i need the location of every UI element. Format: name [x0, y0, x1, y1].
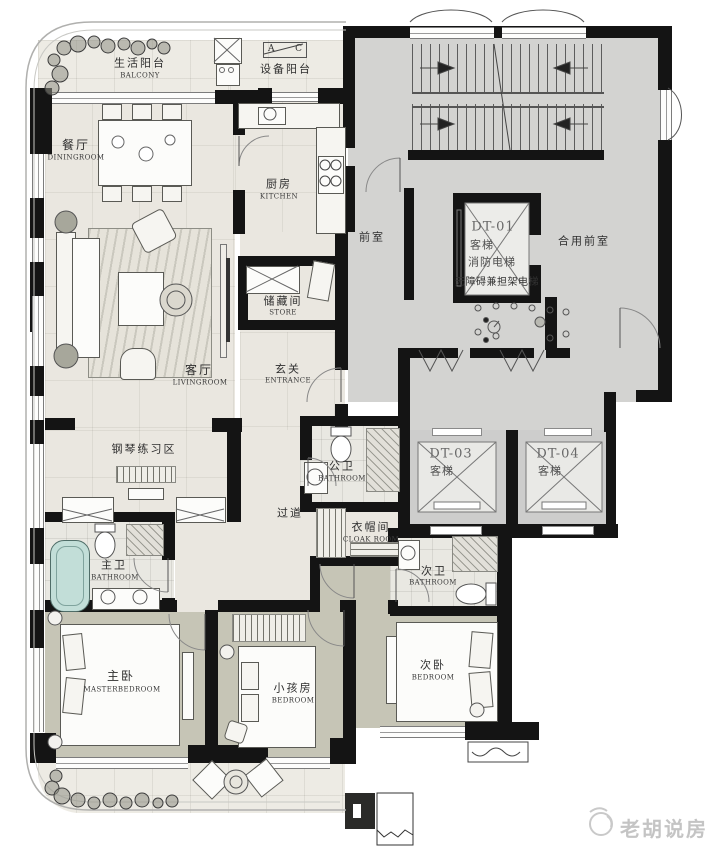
label-corridor: 过道: [277, 508, 303, 519]
label-cloak-room: 衣帽间: [352, 522, 391, 533]
label-master-bedroom: 主卧: [107, 670, 135, 682]
elevator-door-dt04-south: [542, 526, 594, 535]
label-dt04-id: DT-04: [536, 448, 579, 461]
wardrobe-cloak: [316, 508, 346, 558]
lounge-chair: [120, 348, 156, 380]
elevator-door-dt04: [544, 428, 592, 436]
label-second-bedroom: 次卧: [420, 660, 446, 671]
wall: [300, 416, 406, 426]
vanity-master: [92, 588, 160, 610]
label-living: 客厅: [185, 364, 213, 376]
wall: [335, 230, 348, 370]
window: [33, 648, 44, 732]
dining-chair: [102, 104, 122, 120]
wall: [45, 418, 75, 430]
label-second-bedroom-en: BEDROOM: [412, 675, 455, 682]
label-kids-bedroom: 小孩房: [274, 683, 313, 694]
kitchen-window: [272, 92, 318, 102]
pillow: [468, 631, 493, 669]
wall: [30, 610, 44, 648]
section-letter-c: C: [295, 44, 302, 54]
wall: [205, 610, 218, 757]
stair-flight-lower: [412, 104, 604, 150]
stair-window: [410, 27, 494, 39]
window: [32, 154, 44, 198]
section-marker-box: A C: [263, 42, 307, 58]
label-cloak-room-en: CLOAK ROOM: [343, 537, 399, 544]
label-dt01-note: 无障碍兼担架电梯: [455, 278, 539, 288]
wall: [658, 140, 672, 264]
stove: [318, 156, 344, 194]
dining-chair: [162, 186, 182, 202]
wall: [330, 738, 356, 764]
wall: [30, 366, 44, 396]
window: [32, 396, 44, 420]
bed-bench: [386, 636, 397, 704]
wardrobe-kids: [232, 614, 306, 642]
pillow: [468, 671, 493, 709]
wall: [30, 733, 56, 763]
label-kitchen-en: KITCHEN: [260, 194, 298, 201]
wall: [30, 88, 52, 154]
floor-drain-box: [214, 38, 242, 64]
label-public-bath: 公卫: [329, 461, 355, 472]
window: [32, 238, 44, 262]
pillow: [241, 694, 259, 722]
wall: [604, 392, 616, 432]
store-cabinet: [246, 266, 300, 294]
bedroom-slider: [56, 757, 188, 769]
wall: [390, 606, 500, 616]
coffee-table: [118, 272, 164, 326]
elevator-door-dt03-south: [430, 526, 482, 535]
wall: [227, 432, 241, 522]
label-life-balcony-en: BALCONY: [120, 73, 160, 80]
watermark-brand: 老胡说房: [620, 813, 708, 842]
section-letter-a: A: [268, 44, 275, 54]
bathtub: [50, 540, 90, 612]
tv: [226, 258, 230, 342]
label-entrance-en: ENTRANCE: [265, 378, 311, 385]
label-dining-en: DININGROOM: [48, 155, 105, 162]
label-entrance: 玄关: [275, 364, 301, 375]
label-dt03-id: DT-03: [429, 448, 472, 461]
dining-table: [98, 120, 192, 186]
room-corridor-west: [175, 517, 230, 612]
wall: [453, 293, 541, 303]
shower-second: [452, 536, 498, 572]
label-second-bath: 次卫: [421, 566, 447, 577]
balcony-slider: [52, 92, 215, 104]
bedroom-slider: [266, 757, 330, 769]
sofa-seat: [72, 238, 100, 358]
wall: [636, 390, 672, 402]
label-dining: 餐厅: [62, 139, 90, 151]
wall: [30, 198, 44, 238]
wall: [606, 430, 616, 526]
pillow: [62, 677, 86, 715]
wall: [408, 150, 604, 160]
window-seat: [176, 497, 226, 523]
label-master-bath: 主卫: [101, 560, 127, 571]
wall: [233, 190, 245, 234]
label-store: 储藏间: [264, 296, 303, 307]
label-dt01-line2: 消防电梯: [468, 257, 516, 268]
label-public-bath-en: BATHROOM: [318, 476, 366, 483]
washer: [216, 64, 240, 86]
wall: [300, 426, 312, 460]
shower-master: [126, 524, 164, 556]
dining-chair: [162, 104, 182, 120]
elevator-door-dt03: [432, 428, 482, 436]
label-dt01-line1: 客梯: [470, 240, 494, 251]
wall: [545, 297, 557, 350]
window: [660, 90, 672, 140]
pillow: [62, 633, 86, 671]
wall: [465, 722, 539, 740]
watermark-logo-icon: [590, 808, 612, 835]
label-life-balcony: 生活阳台: [114, 58, 166, 69]
label-dt01-id: DT-01: [471, 221, 514, 234]
wall: [658, 342, 672, 394]
bed-bench: [182, 652, 194, 720]
wall: [212, 418, 242, 432]
label-kids-bedroom-en: BEDROOM: [272, 698, 315, 705]
wall: [506, 430, 518, 526]
flue-outline: [377, 793, 413, 845]
label-kitchen: 厨房: [266, 179, 292, 190]
wall: [529, 203, 541, 235]
wall: [343, 612, 356, 757]
wall: [404, 188, 414, 300]
label-shared-front-room: 合用前室: [558, 236, 610, 247]
wall: [470, 348, 534, 358]
label-second-bath-en: BATHROOM: [409, 580, 457, 587]
window: [33, 564, 44, 610]
window: [380, 726, 465, 738]
wall: [218, 600, 310, 612]
stair-flight-upper: [412, 44, 604, 92]
stair-window: [502, 27, 586, 39]
label-master-bath-en: BATHROOM: [91, 575, 139, 582]
label-dt04-type: 客梯: [538, 466, 562, 477]
window-seat: [62, 497, 114, 523]
vanity-second: [398, 540, 420, 570]
kitchen-counter: [238, 103, 340, 129]
shower-public: [366, 428, 400, 492]
wall: [318, 88, 345, 104]
wall: [546, 348, 570, 358]
wall: [188, 745, 230, 763]
dining-chair: [102, 186, 122, 202]
kitchen-sink: [258, 107, 286, 125]
window: [32, 296, 44, 366]
wall: [497, 538, 512, 738]
wall: [658, 264, 672, 342]
bay-window: [33, 444, 44, 528]
label-master-bedroom-en: MASTERBEDROOM: [83, 687, 160, 694]
label-piano-area: 钢琴练习区: [112, 444, 177, 455]
piano-keyboard: [116, 466, 176, 483]
wall: [404, 348, 458, 358]
dining-chair: [132, 104, 152, 120]
label-living-en: LIVINGROOM: [173, 380, 228, 387]
flue-slot: [353, 804, 361, 818]
pillow: [241, 662, 259, 690]
piano-bench: [128, 488, 164, 500]
wall: [340, 600, 356, 612]
label-store-en: STORE: [269, 310, 297, 317]
elevator-cell-dt03: [408, 430, 508, 526]
label-dt03-type: 客梯: [430, 466, 454, 477]
label-equipment-balcony: 设备阳台: [260, 64, 312, 75]
label-front-room: 前室: [359, 232, 385, 243]
dining-chair: [132, 186, 152, 202]
wall: [453, 193, 541, 203]
elevator-cell-dt04: [518, 430, 616, 526]
wall: [30, 420, 44, 444]
floor-plan: A C: [0, 0, 712, 858]
ac-bracket: [468, 742, 528, 762]
wall: [243, 320, 338, 330]
wall: [30, 528, 44, 564]
wall: [658, 26, 672, 90]
stair-landing: [412, 92, 604, 108]
